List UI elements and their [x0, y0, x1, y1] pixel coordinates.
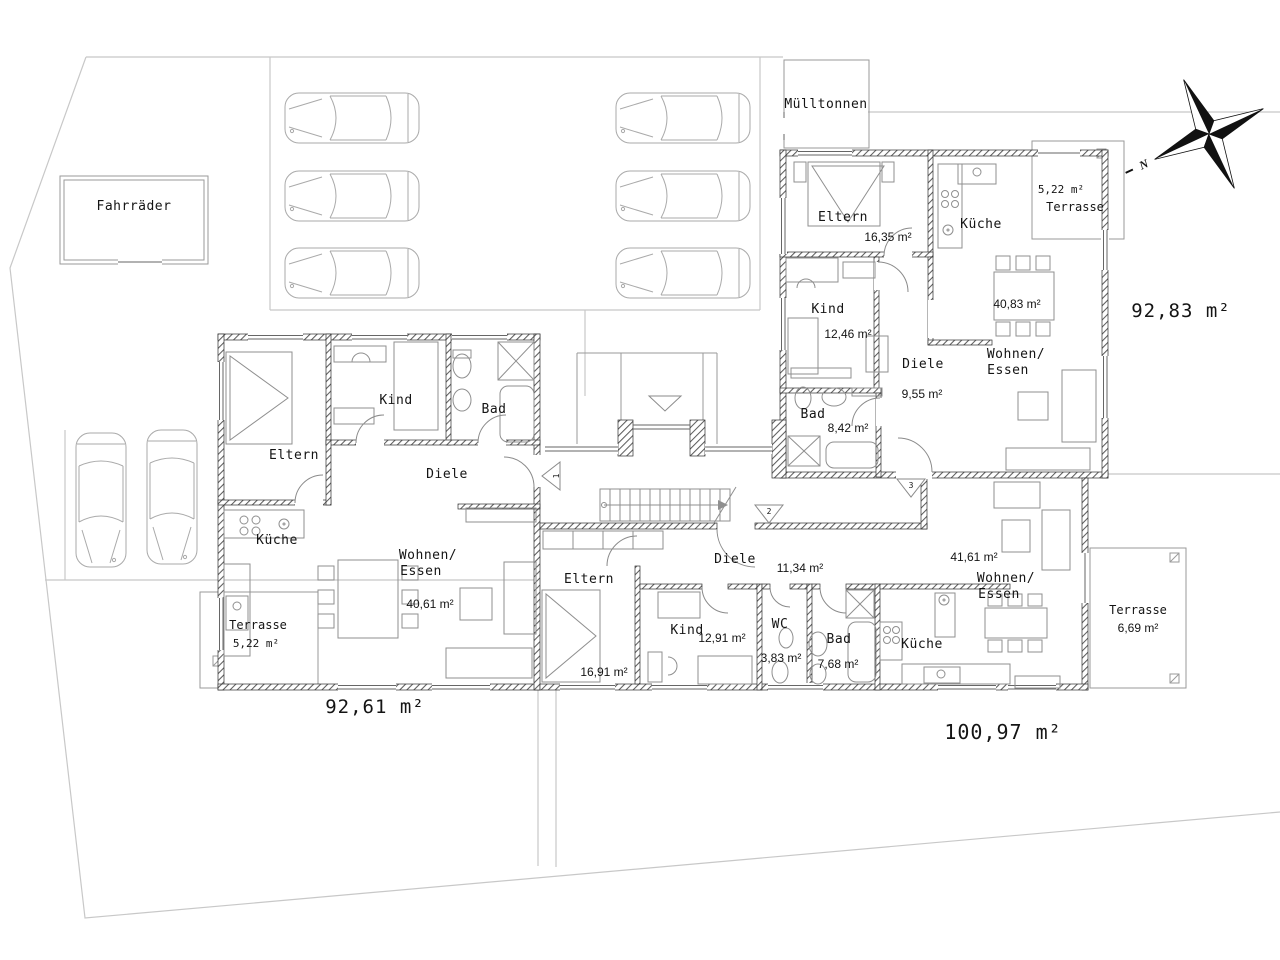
compass-north-label: N	[1136, 156, 1152, 173]
room-label-bad: Bad	[482, 402, 507, 417]
bed	[698, 656, 752, 684]
bathtub	[848, 622, 876, 682]
room-label-wc: WC	[772, 617, 789, 632]
room-label-diele: Diele	[902, 357, 944, 372]
room-label-diele: Diele	[714, 552, 756, 567]
car	[616, 248, 750, 298]
coffee-table	[1018, 392, 1048, 420]
coffee-table	[460, 588, 492, 620]
staircase	[600, 487, 736, 523]
desk	[334, 346, 386, 362]
waste-bins-label: Mülltonnen	[784, 97, 867, 112]
apartment-total-area-left: 92,61 m²	[325, 696, 425, 718]
terrace-area: 6,69 m²	[1118, 621, 1159, 635]
sofa	[1062, 370, 1096, 442]
entrance-number-1: 1	[552, 473, 561, 478]
bike-storage-box	[60, 176, 208, 266]
sofa	[1042, 510, 1070, 570]
sofa	[994, 482, 1040, 508]
sofa	[658, 592, 700, 618]
sofa	[504, 562, 536, 634]
car	[76, 433, 126, 567]
room-area-wohnen: 41,61 m²	[950, 550, 997, 564]
room-label-kueche: Küche	[960, 217, 1002, 232]
room-area-wc: 3,83 m²	[761, 651, 802, 665]
sideboard	[466, 508, 536, 522]
bed	[226, 352, 292, 444]
dining-table	[985, 608, 1047, 638]
terrace-label: Terrasse	[1109, 603, 1167, 617]
entrance-number-3: 3	[909, 481, 914, 490]
car	[285, 93, 419, 143]
entrance-markers: 1 2 3	[542, 462, 925, 523]
room-area-eltern: 16,91 m²	[580, 665, 627, 679]
room-label-bad: Bad	[801, 407, 826, 422]
room-area-bad: 7,68 m²	[818, 657, 859, 671]
car	[285, 171, 419, 221]
parking-cars	[76, 93, 750, 567]
chair	[668, 657, 677, 675]
room-area-diele: 11,34 m²	[777, 561, 823, 575]
terrace-area: 5,22 m²	[1038, 183, 1084, 196]
room-area-bad: 8,42 m²	[828, 421, 869, 435]
entrance-arrow-icon	[649, 396, 681, 411]
apartment-total-area-right: 92,83 m²	[1131, 300, 1231, 322]
terrace-label: Terrasse	[229, 618, 287, 632]
stove	[942, 191, 949, 198]
terrace-area: 5,22 m²	[233, 637, 279, 650]
room-area-kind: 12,46 m²	[824, 327, 871, 341]
room-area-diele: 9,55 m²	[902, 387, 943, 401]
compass-rose: N	[1100, 54, 1280, 227]
desk	[648, 652, 662, 682]
dining-table	[338, 560, 398, 638]
room-label-kind: Kind	[811, 302, 844, 317]
room-label-kueche: Küche	[256, 533, 298, 548]
room-label-kueche: Küche	[901, 637, 943, 652]
bike-storage-label: Fahrräder	[97, 199, 172, 214]
chair	[996, 256, 1010, 270]
bathtub	[826, 442, 878, 468]
entrance-number-2: 2	[767, 507, 772, 516]
room-label-kind: Kind	[379, 393, 412, 408]
room-label-eltern: Eltern	[564, 572, 614, 587]
floor-plan-page: 1 2 3 N Fahrräder Mülltonnen Eltern Kind…	[0, 0, 1280, 960]
terrace-bottom-right	[1090, 548, 1186, 688]
room-area-wohnen: 40,83 m²	[993, 297, 1040, 311]
car	[147, 430, 197, 564]
terrace-label: Terrasse	[1046, 200, 1104, 214]
car	[285, 248, 419, 298]
room-label-eltern: Eltern	[269, 448, 319, 463]
room-label-wohnen-2: Essen	[978, 587, 1020, 602]
room-area-kind: 12,91 m²	[698, 631, 745, 645]
room-area-eltern: 16,35 m²	[864, 230, 911, 244]
room-label-wohnen-1: Wohnen/	[987, 347, 1045, 362]
chair	[318, 566, 334, 580]
apartment-total-area-bottom: 100,97 m²	[944, 720, 1061, 744]
room-label-bad: Bad	[827, 632, 852, 647]
room-label-wohnen-1: Wohnen/	[977, 571, 1035, 586]
room-label-wohnen-2: Essen	[987, 363, 1029, 378]
room-label-wohnen-2: Essen	[400, 564, 442, 579]
car	[616, 171, 750, 221]
sofa	[446, 648, 532, 678]
bed	[394, 342, 438, 430]
desk	[786, 258, 838, 282]
kitchen-sink	[924, 667, 960, 683]
chair	[352, 353, 370, 362]
room-area-wohnen: 40,61 m²	[406, 597, 453, 611]
site-plan-drawing: 1 2 3 N Fahrräder Mülltonnen Eltern Kind…	[0, 0, 1280, 960]
chair	[797, 279, 815, 288]
room-label-diele: Diele	[426, 467, 468, 482]
bed	[788, 318, 818, 374]
room-label-wohnen-1: Wohnen/	[399, 548, 457, 563]
coffee-table	[1002, 520, 1030, 552]
kitchen-sink	[958, 164, 996, 184]
car	[616, 93, 750, 143]
stove	[884, 627, 891, 634]
sink	[453, 389, 471, 411]
room-label-eltern: Eltern	[818, 210, 868, 225]
stove	[240, 516, 248, 524]
dining-table	[994, 272, 1054, 320]
sofa	[1006, 448, 1090, 470]
